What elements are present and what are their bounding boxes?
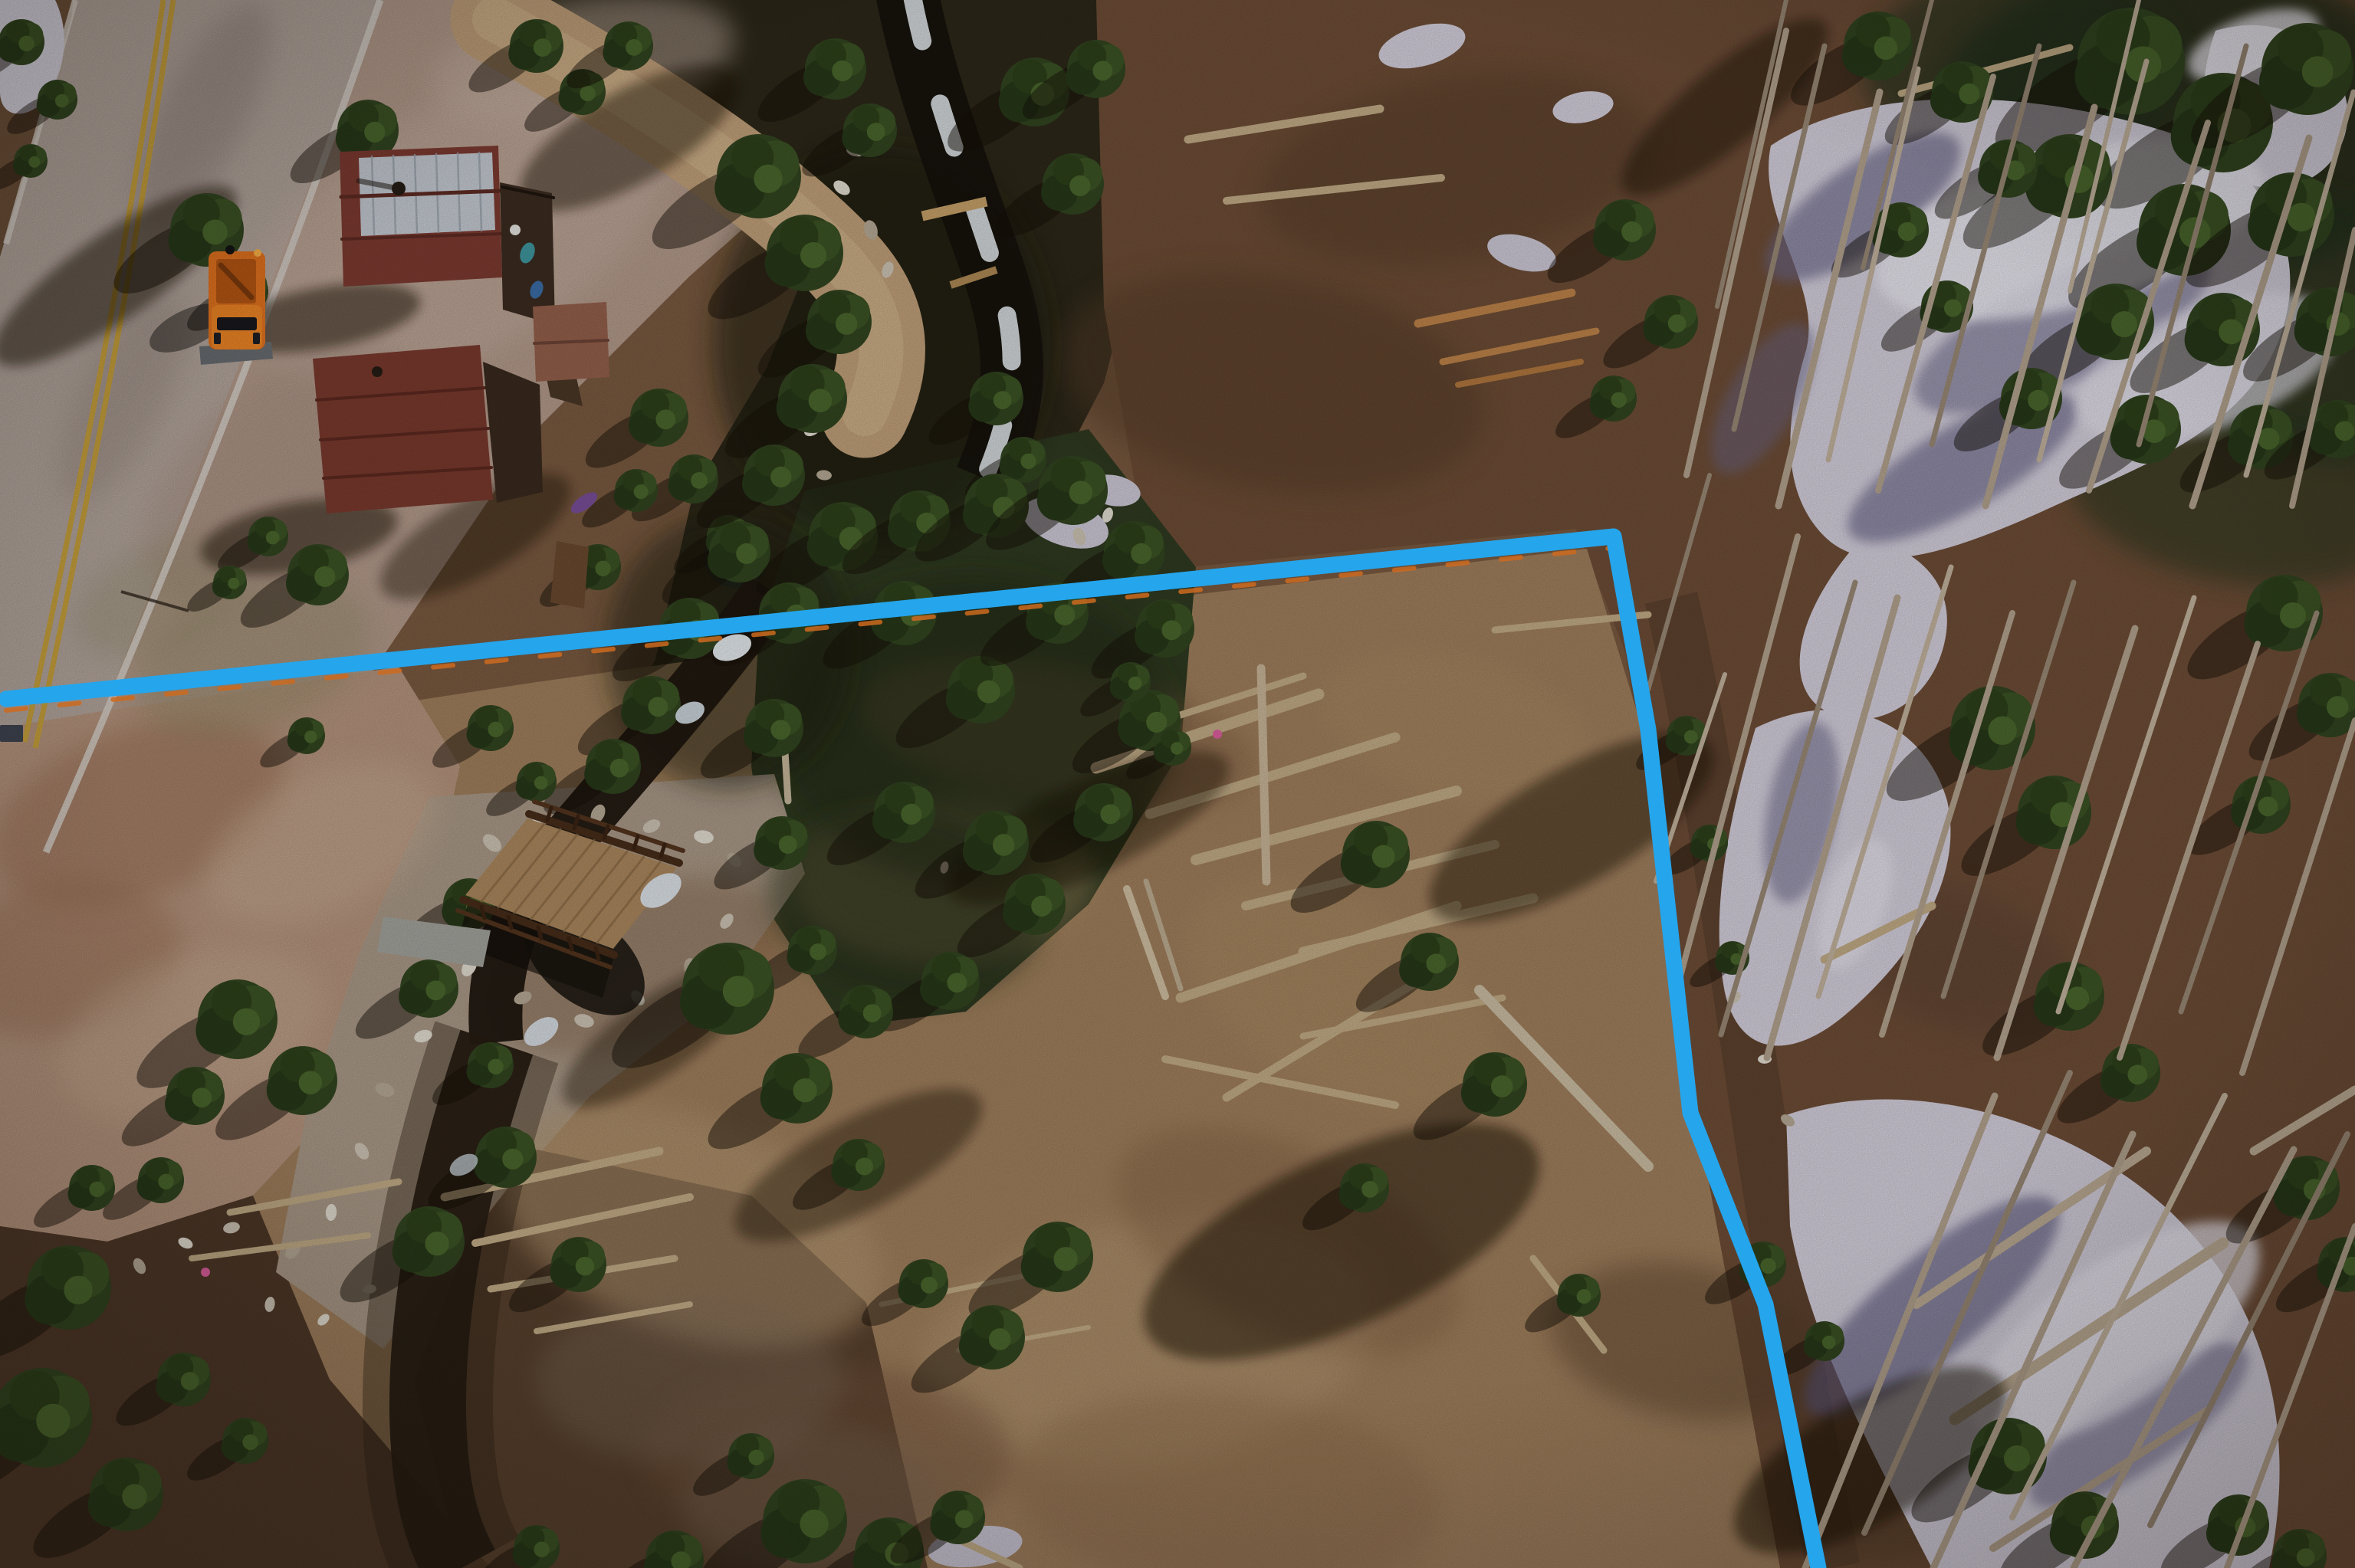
aerial-photo bbox=[0, 0, 2355, 1568]
aerial-photo-canvas bbox=[0, 0, 2355, 1568]
photo-vignette bbox=[0, 0, 2355, 1568]
